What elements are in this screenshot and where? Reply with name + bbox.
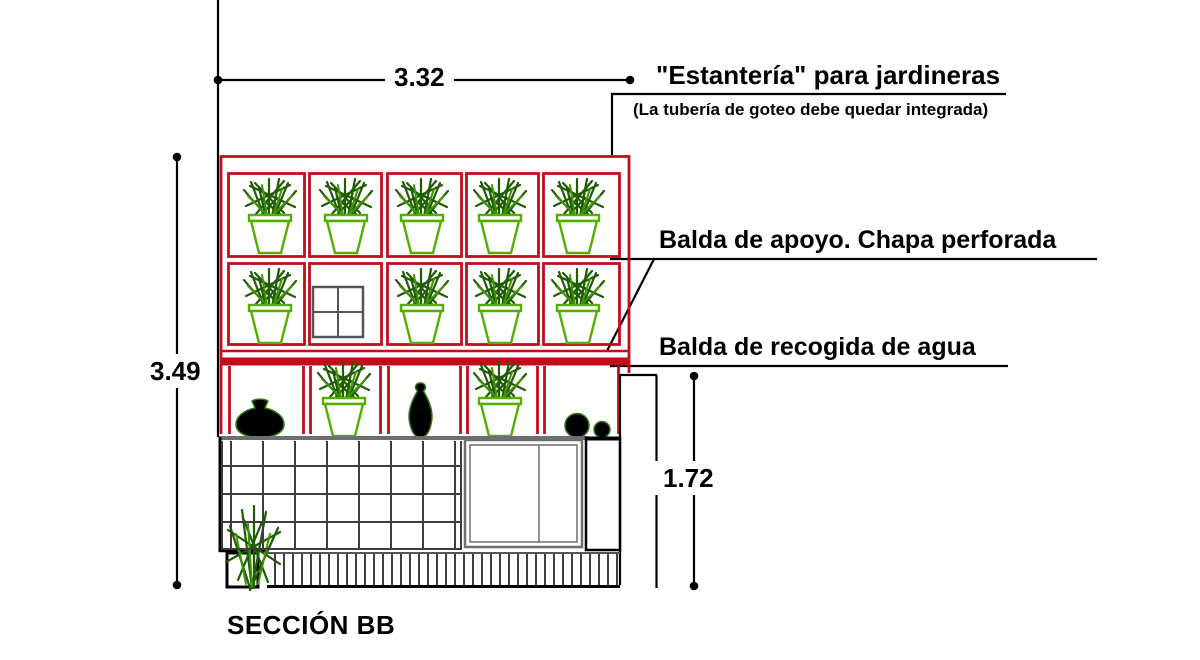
plant-icon bbox=[474, 269, 526, 343]
plant-icon bbox=[552, 179, 604, 253]
plant-icon bbox=[318, 362, 370, 436]
plant-icon bbox=[396, 179, 448, 253]
dimension-dot bbox=[690, 372, 699, 381]
dimension-dot bbox=[173, 581, 182, 590]
plinth-hatch bbox=[267, 552, 620, 588]
tall-vase-icon bbox=[409, 383, 432, 438]
plant-icon bbox=[396, 269, 448, 343]
dimension-dot bbox=[214, 76, 223, 85]
plant-icon bbox=[320, 179, 372, 253]
section-drawing: 3.32 3.49 1.72 "Estantería" para jardine… bbox=[0, 0, 1200, 660]
plant-icon bbox=[552, 269, 604, 343]
side-wall bbox=[620, 374, 657, 588]
plant-icon bbox=[474, 362, 526, 436]
shelving-note-label: (La tubería de goteo debe quedar integra… bbox=[633, 101, 988, 118]
support-shelf-label: Balda de apoyo. Chapa perforada bbox=[659, 228, 1056, 253]
sphere-decor-icon bbox=[565, 414, 610, 438]
counter-tiles bbox=[221, 441, 462, 550]
counter-right-section bbox=[586, 438, 620, 550]
window-icon bbox=[313, 287, 363, 337]
round-vase-icon bbox=[236, 399, 284, 437]
dimension-counter-height-value: 1.72 bbox=[654, 461, 723, 495]
dimension-dot bbox=[173, 153, 182, 162]
plant-icon bbox=[244, 179, 296, 253]
dimension-total-height-value: 3.49 bbox=[141, 354, 210, 388]
dimension-dot bbox=[626, 76, 635, 85]
water-shelf-label: Balda de recogida de agua bbox=[659, 335, 976, 360]
dimension-width-value: 3.32 bbox=[385, 60, 454, 94]
cabinet-panel bbox=[465, 440, 582, 547]
plant-icon bbox=[244, 269, 296, 343]
shelving-title-label: "Estantería" para jardineras bbox=[656, 62, 1000, 88]
plant-icon bbox=[474, 179, 526, 253]
section-title: SECCIÓN BB bbox=[227, 612, 395, 638]
dimension-dot bbox=[690, 582, 699, 591]
water-shelf-band bbox=[222, 358, 628, 366]
